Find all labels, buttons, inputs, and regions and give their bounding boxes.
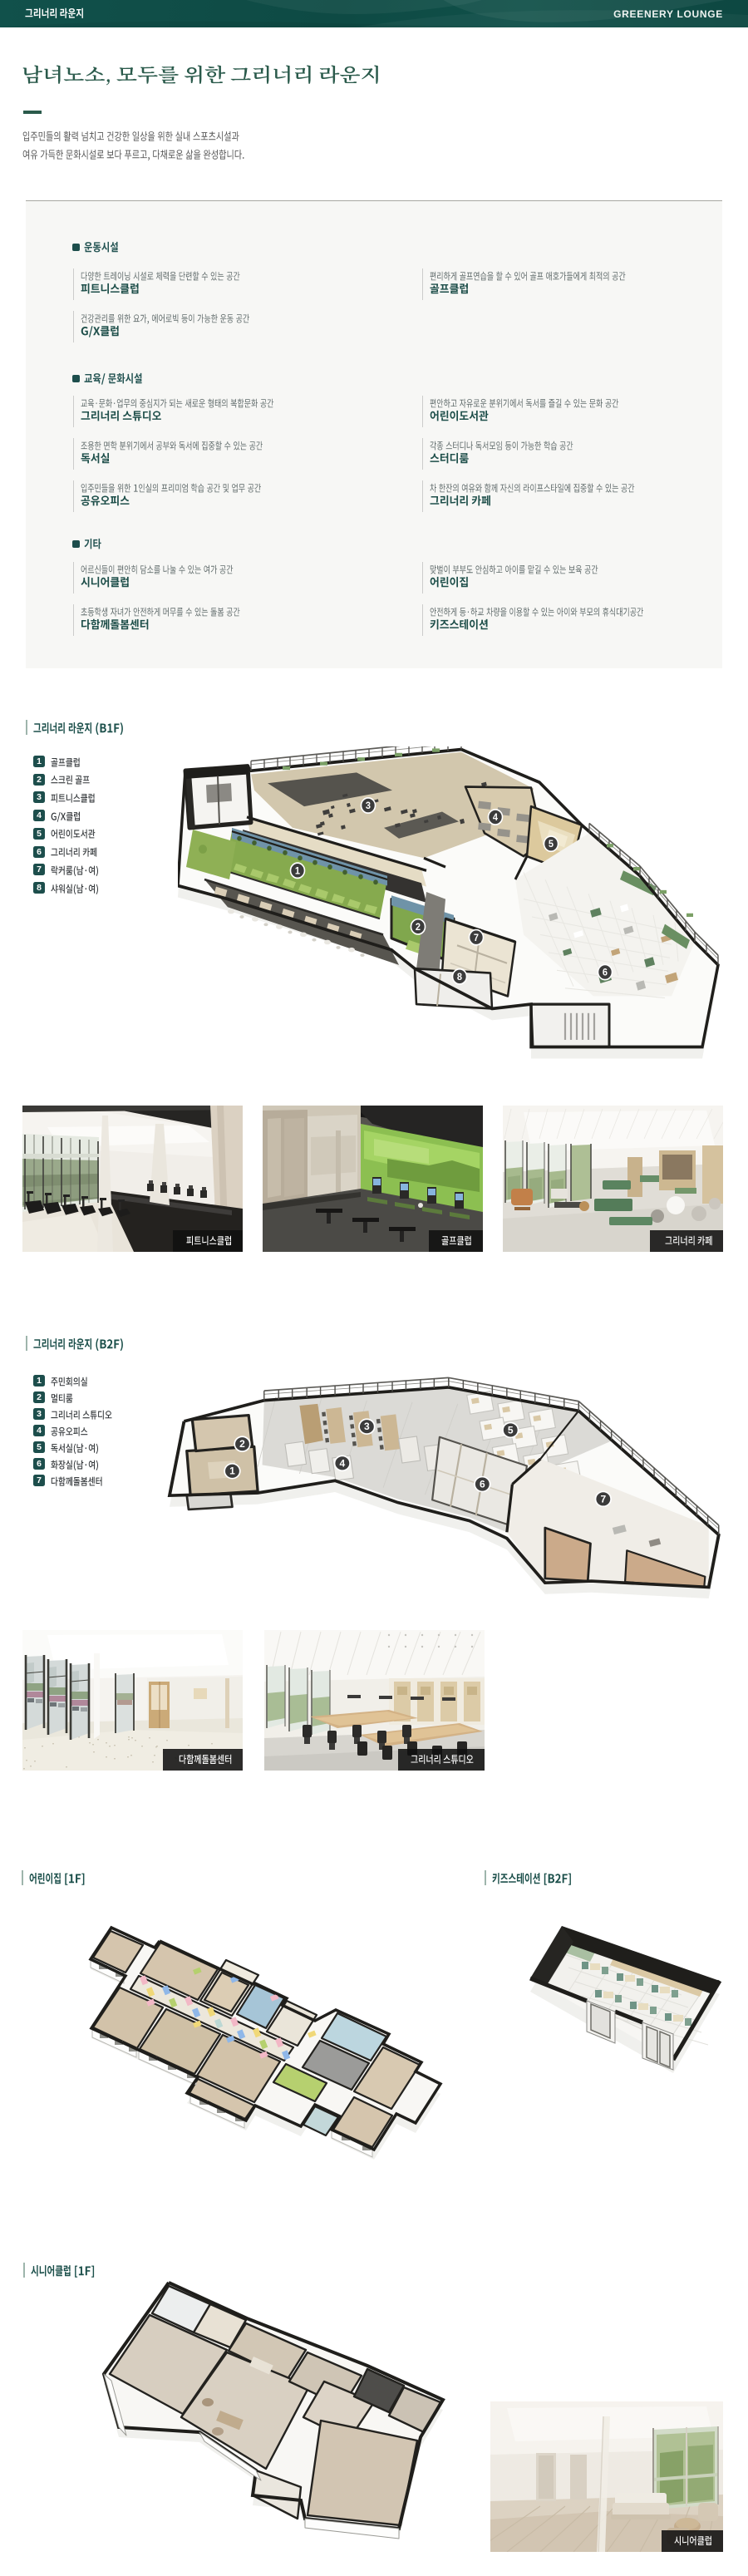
svg-text:7: 7 xyxy=(474,933,479,943)
svg-text:1: 1 xyxy=(229,1466,235,1477)
svg-text:7: 7 xyxy=(600,1495,606,1505)
svg-text:5: 5 xyxy=(508,1426,514,1436)
svg-text:1: 1 xyxy=(295,866,301,876)
svg-text:5: 5 xyxy=(549,840,554,850)
svg-text:8: 8 xyxy=(457,973,462,983)
svg-text:3: 3 xyxy=(366,801,371,811)
svg-text:4: 4 xyxy=(339,1458,345,1469)
svg-text:4: 4 xyxy=(493,813,499,823)
svg-text:6: 6 xyxy=(480,1480,485,1490)
svg-text:3: 3 xyxy=(364,1421,370,1432)
svg-text:2: 2 xyxy=(416,923,421,933)
svg-text:6: 6 xyxy=(603,968,608,978)
svg-text:2: 2 xyxy=(239,1439,245,1450)
